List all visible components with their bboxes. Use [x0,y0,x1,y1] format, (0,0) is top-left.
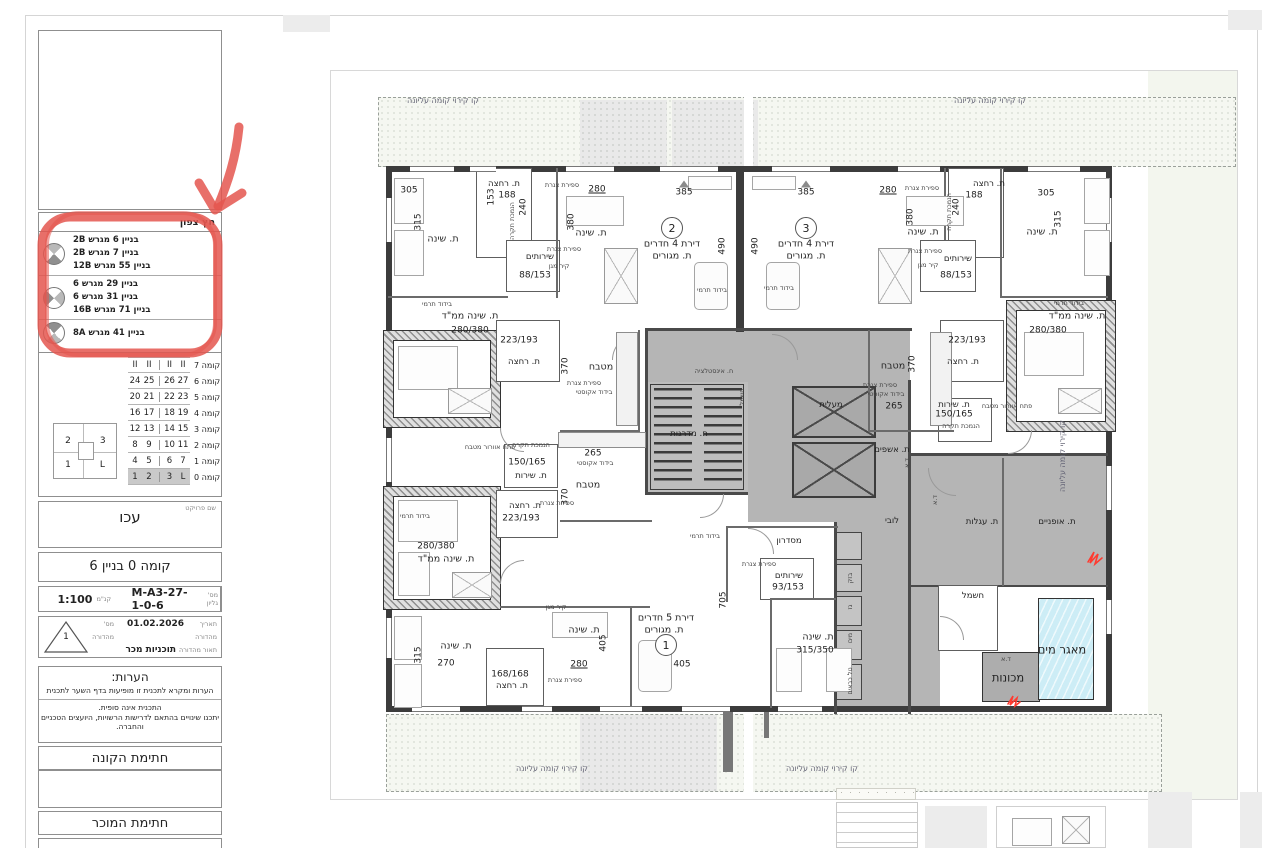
plan-label: ת. שינה [907,227,938,237]
floor-cell: 27 [176,376,190,386]
wardrobe-box [448,388,492,414]
floor-row: 123Lקומה 0 [128,469,220,485]
sheet-title: קומה 0 בניין 6 [39,559,221,574]
plan-label: 188 [965,192,982,201]
building-group: בניין 41 מגרש 8A [39,320,221,346]
plan-label: בידוד תרמי [764,285,794,292]
partition-wall [1002,458,1004,586]
stair-detail-fragment [836,802,918,848]
sheet-number: M-A3-27-1-0-6 [132,586,197,612]
plan-label: טל כבאים [847,667,854,694]
notes-panel: הערות: הערות ומקרא לתכנית זו מופיעות בדף… [38,666,222,743]
plan-label: 88/153 [940,272,972,281]
plan-label: קו קירוי קומה עליונה [516,765,588,773]
plan-label: 280/380 [417,543,454,552]
plan-label: ספירת צנרת [540,500,574,507]
plan-label: 93/153 [772,584,804,593]
wardrobe-box [604,248,638,304]
floor-cell: 7 [176,456,190,466]
floor-cell: 15 [176,424,190,434]
plan-label: 405 [600,634,609,651]
building-entry: בניין 41 מגרש 8A [69,327,217,340]
plan-label: ת. רחצה [973,180,1005,189]
floor-row: 4567קומה 1 [128,453,220,469]
plan-label: קיר מגן [918,262,939,269]
key-plan-label: 2 [65,436,71,446]
window [682,706,730,712]
floor-cell: 8 [128,440,142,450]
plan-label: ד.א [904,458,911,468]
seller-signature-title: חתימת המוכר [39,812,221,831]
plan-label: בידוד תרמי [690,533,720,540]
north-arrow-icon [38,282,69,313]
wardrobe-box [1062,816,1090,844]
plan-label: ת. שינה [568,625,599,635]
pattern-strip [836,788,916,800]
plan-label: 168/168 [491,671,528,680]
notes-paragraph-line: התכנית אינה סופית. [39,703,221,713]
plan-label: 270 [437,660,454,669]
plan-label: מים [847,633,854,643]
plan-label: 315 [1055,210,1064,227]
plan-label: ת. שינה ממ"ד [1049,311,1106,321]
wall-segment [388,706,1112,712]
plan-label: קו קירוי קומה עליונה [1059,420,1067,492]
plan-label: ת. אופניים [1038,518,1075,527]
plan-label: 370 [909,355,918,372]
plan-label: 265 [885,403,902,412]
floor-cell: 20 [128,392,142,402]
core-wall-segment [646,328,912,331]
furniture [398,500,458,542]
margin-tint [1148,71,1237,799]
sheet-fragment [1228,10,1262,30]
plan-label: ת. שינה [440,641,471,651]
edition-number-triangle: 1 [43,620,89,654]
plan-label: קיר מגן [549,263,570,270]
floor-cell: 24 [128,376,142,386]
plan-label: ספירת צנרת [545,182,579,189]
floor-cell: II [128,360,142,370]
plan-label: ת. שינה [1026,227,1057,237]
floor-label: קומה 0 [194,473,220,482]
window [660,166,718,172]
window [1028,166,1080,172]
plan-label: 188 [498,192,515,201]
plan-label: חשמל [962,592,984,601]
plan-label: מטבח [576,480,600,490]
dimension-triangle [679,181,689,188]
plan-label: פתח אוורור מטבח [982,403,1032,410]
edition-number: 1 [43,632,89,642]
furniture [394,230,424,276]
plan-label: 223/193 [502,515,539,524]
window [386,198,392,242]
buyer-signature-area [38,770,222,808]
north-table-header: חץ צפון [39,213,221,232]
plan-label: 315/350 [796,647,833,656]
floor-label: קומה 5 [194,393,220,402]
plan-label: 240 [953,198,962,215]
title-block-empty-panel [38,30,222,210]
floor-cell: 1 [128,472,142,482]
partition-wall [630,606,632,708]
window [522,706,552,712]
floor-cell: 23 [176,392,190,402]
window [386,618,392,658]
furniture [394,664,422,708]
plan-label: ת. רחצה [488,180,520,189]
plan-label: דירת 5 חדרים [638,613,694,623]
plan-label: 385 [675,189,692,198]
plan-label: דירת 4 חדרים [644,239,700,249]
terrace-block [580,715,717,791]
plan-label: בידוד תרמי [422,301,452,308]
core-wall-segment [645,328,648,494]
buyer-signature-title-panel: חתימת הקונה [38,746,222,770]
edition-number-caption: מס' מהדורה [89,618,114,644]
floor-row: 891011קומה 2 [128,437,220,453]
furniture [1024,332,1084,376]
floor-row: 24252627קומה 6 [128,373,220,389]
plan-label: לובי [885,517,899,526]
partition-wall [770,598,842,600]
plan-label: ת. שינה [427,234,458,244]
plan-label: מסדרון [776,537,801,546]
plan-label: גז [847,605,854,610]
plan-label: שירותים [526,253,554,262]
plan-label: 265 [584,450,601,459]
sheet-fragment [1148,792,1192,848]
floor-row: IIIIIIIIקומה 7 [128,357,220,373]
lower-roof-band [386,714,1162,792]
floor-cell: 25 [142,376,156,386]
floor-cell: 13 [142,424,156,434]
floor-cell: 26 [159,376,176,386]
project-name-panel: שם פרויקט עכו [38,501,222,548]
plan-label: 280/380 [1029,327,1066,336]
plan-label: ספירת צנרת [547,246,581,253]
sheet-number-caption: מס' גליון [200,591,218,607]
plan-label: בזק [847,573,854,584]
key-plan-label: 3 [100,436,106,446]
plan-label: 280 [588,186,605,195]
floor-label: קומה 3 [194,425,220,434]
wardrobe-box [1058,388,1102,414]
plan-label: הנמכת תקרה [512,442,550,449]
plan-label: קיר מגן [546,604,567,611]
plan-label: 240 [520,198,529,215]
scale-value: 1:100 [57,593,92,606]
seller-signature-title-panel: חתימת המוכר [38,811,222,835]
floor-label: קומה 6 [194,377,220,386]
floor-cell: 2 [142,472,156,482]
plan-label: 223/193 [948,337,985,346]
plan-label: 385 [797,189,814,198]
plan-label: 315 [415,646,424,663]
plan-label: ת. רחצה [508,358,540,367]
plan-label: בידוד תרמי [1054,300,1084,307]
building-group: בניין 6 מגרש 2Bבניין 7 מגרש 2Bבניין 55 מ… [39,232,221,276]
floor-row: 20212223קומה 5 [128,389,220,405]
north-arrow-icon [38,238,69,269]
window [898,166,940,172]
plan-label: ת. שינה [575,228,606,238]
utility-closet [836,532,862,560]
sheet-number-cell: מס' גליון M-A3-27-1-0-6 [130,587,222,611]
plan-label: 490 [719,237,728,254]
partition-wall [868,430,954,432]
edition-desc-caption: תאור מהדורה [179,644,217,657]
plan-label: שירותים [775,572,803,581]
window [778,706,822,712]
plan-label: ת. עגלות [966,518,999,527]
furniture [1012,818,1052,846]
elevator-shaft [792,442,876,498]
sheet-fragment [1240,792,1262,848]
notes-title: הערות: [39,670,221,684]
sheet-meta-panel: קנ"מ 1:100 מס' גליון M-A3-27-1-0-6 [38,586,222,612]
plan-label: בידוד תרמי [400,513,430,520]
plan-label: 705 [720,591,729,608]
plan-label: 88/153 [519,272,551,281]
notes-paragraph-line: יתכנו שינויים בהתאם לדרישות הרשויות, היו… [39,713,221,723]
buyer-signature-title: חתימת הקונה [39,747,221,766]
plan-label: 150/165 [935,411,972,420]
edition-panel: 1 תאריך מהדורה 01.02.2026 מס' מהדורה תאו… [38,616,222,658]
key-plan-label: 1 [65,460,71,470]
window [410,166,454,172]
floor-cell: 12 [128,424,142,434]
wall-segment [764,712,769,738]
floor-cell: 6 [159,456,176,466]
plan-label: ספירת צנרת [908,248,942,255]
plan-label: ספירת צנרת [863,382,897,389]
building-list-table: חץ צפון בניין 6 מגרש 2Bבניין 7 מגרש 2Bבנ… [38,212,222,353]
key-plan-label: L [100,460,105,470]
floor-label: קומה 7 [194,361,220,370]
plan-label: דירת 4 חדרים [778,239,834,249]
plan-label: ת. שינה ממ"ד [418,554,475,564]
floor-cell: 22 [159,392,176,402]
window [566,166,614,172]
floor-cell: 21 [142,392,156,402]
apartment-number-badge: 2 [661,217,683,239]
furniture [1084,230,1110,276]
kitchen-counter [616,332,638,426]
plan-label: ח. מדרגות [670,430,708,439]
plan-label: שירותים [944,255,972,264]
scale-caption: קנ"מ [96,595,111,603]
plan-label: קו קירוי קומה עליונה [786,765,858,773]
kitchen-counter [558,432,646,448]
wall-segment [736,171,744,332]
plan-label: ת. רחצה [496,682,528,691]
floor-cell: 11 [176,440,190,450]
north-arrow-icon [38,317,69,348]
partition-wall [388,296,508,298]
floor-label: קומה 1 [194,457,220,466]
wardrobe-box [452,572,492,598]
plan-label: פתח אוורור מטבח [465,444,515,451]
plan-label: 490 [752,237,761,254]
window [470,166,496,172]
plan-label: ת. מגורים [652,251,691,261]
plan-label: מכונות [992,672,1024,684]
edition-date: 01.02.2026 [127,618,184,631]
plan-label: מטבח [589,362,613,372]
floor-cell: L [176,472,190,482]
plan-label: קו קירוי קומה עליונה [407,97,479,105]
plan-label: 305 [400,187,417,196]
wardrobe-box [878,248,912,304]
sheet-title-panel: קומה 0 בניין 6 [38,552,222,582]
scale-cell: קנ"מ 1:100 [39,587,130,611]
floor-row: 16171819קומה 4 [128,405,220,421]
floor-label: קומה 4 [194,409,220,418]
plan-label: ספירת צנרת [567,380,601,387]
apartment-number-badge: 3 [795,217,817,239]
floor-cell: II [159,360,176,370]
plan-label: ת. רחצה [509,502,541,511]
plan-label: 153 [488,188,497,205]
furniture [1084,178,1110,224]
apartment-number-badge: 1 [655,634,677,656]
plan-label: 280 [879,187,896,196]
floor-cell: 5 [142,456,156,466]
floor-cell: 14 [159,424,176,434]
plan-label: ת. שינה [802,632,833,642]
notes-paragraph-line: והחברה. [39,722,221,732]
plan-label: ד.א [1001,656,1011,663]
project-caption: שם פרויקט [185,504,216,512]
plan-label: ת. אשפים [874,446,910,455]
plan-label: ת. שירות [938,401,970,410]
floor-cell: 16 [128,408,142,418]
partition-wall [1000,296,1108,298]
plan-label: הנמכת תקרה [946,193,953,231]
floor-table: IIIIIIIIקומה 724252627קומה 620212223קומה… [128,357,220,485]
plan-label: מטבח [881,361,905,371]
plan-label: ספירת צנרת [548,677,582,684]
plan-label: 370 [562,357,571,374]
sheet-fragment [283,15,330,32]
plan-label: 380 [907,208,916,225]
floor-cell: 9 [142,440,156,450]
dimension-triangle [801,181,811,188]
floor-cell: 4 [128,456,142,466]
key-plan-diagram: 2 3 1 L [53,423,117,479]
building-entry: בניין 29 מגרש 6 [69,278,217,291]
plan-label: 223/193 [500,337,537,346]
partition-wall [560,520,652,522]
floor-cell: 17 [142,408,156,418]
core-wall-segment [645,492,748,495]
plan-label: ד.א [932,495,939,505]
floor-cell: II [176,360,190,370]
partition-wall [638,330,640,432]
sheet-fragment [925,806,987,848]
notes-line: הערות ומקרא לתכנית זו מופיעות בדף השער ל… [39,686,221,700]
partition-wall [726,526,838,528]
floor-cell: 19 [176,408,190,418]
floor-label: קומה 2 [194,441,220,450]
floor-cell: II [142,360,156,370]
building-entry: בניין 7 מגרש 2B [69,247,217,260]
plan-label: 280 [570,661,587,670]
plan-label: בידוד אקוסטי [576,389,613,396]
plan-label: ספירת צנרת [905,185,939,192]
building-entry: בניין 71 מגרש 16B [69,304,217,317]
floor-cell: 18 [159,408,176,418]
plan-label: בידוד תרמי [697,287,727,294]
plan-label: בידוד אקוסטי [577,460,614,467]
building-entry: בניין 55 מגרש 12B [69,260,217,273]
furniture [688,176,732,190]
floor-matrix-panel: IIIIIIIIקומה 724252627קומה 620212223קומה… [38,352,222,497]
window [386,438,392,482]
window [1106,600,1112,634]
building-entry: בניין 6 מגרש 2B [69,234,217,247]
furniture [398,346,458,390]
plan-label: הנמכת תקרה [509,202,516,240]
plan-label: ספירת צנרת [742,561,776,568]
edition-date-caption: תאריך מהדורה [187,618,217,644]
window [772,166,830,172]
seller-signature-area [38,838,222,848]
plan-label: 315 [415,213,424,230]
plan-label: הנמכת תקרה [942,423,980,430]
plan-label: בידוד אקוסטי [868,391,905,398]
plan-label: ת. מגורים [786,251,825,261]
edition-desc: תוכניות מכר [126,644,176,657]
plan-label: מעלית [819,401,842,410]
partition-wall [770,598,772,708]
plan-label: חשמל [739,389,746,406]
window [1106,466,1112,510]
furniture [752,176,796,190]
window [600,706,642,712]
wall-segment [723,712,733,772]
partition-wall [500,606,650,608]
plan-label: ח. אינסטלציה [695,368,733,375]
upper-ro of-band [378,97,1236,167]
building-group: בניין 29 מגרש 6בניין 31 מגרש 6בניין 71 מ… [39,276,221,320]
plan-label: ת. רחצה [947,358,979,367]
plan-label: 305 [1037,190,1054,199]
floor-cell: 3 [159,472,176,482]
plan-label: קו קירוי קומה עליונה [954,97,1026,105]
plan-label: מאגר מים [1038,644,1086,656]
common-area-fill [910,587,940,707]
plan-label: 150/165 [508,459,545,468]
building-entry: בניין 31 מגרש 6 [69,291,217,304]
plan-label: 405 [673,661,690,670]
plan-label: ת. שירות [515,472,547,481]
elevator-shaft [792,386,876,438]
plan-label: 280/380 [451,327,488,336]
floor-row: 12131415קומה 3 [128,421,220,437]
floor-cell: 10 [159,440,176,450]
terrace-block [580,100,667,167]
plan-label: ת. שינה ממ"ד [442,311,499,321]
utility-closet [836,596,862,626]
room-box [496,320,560,382]
